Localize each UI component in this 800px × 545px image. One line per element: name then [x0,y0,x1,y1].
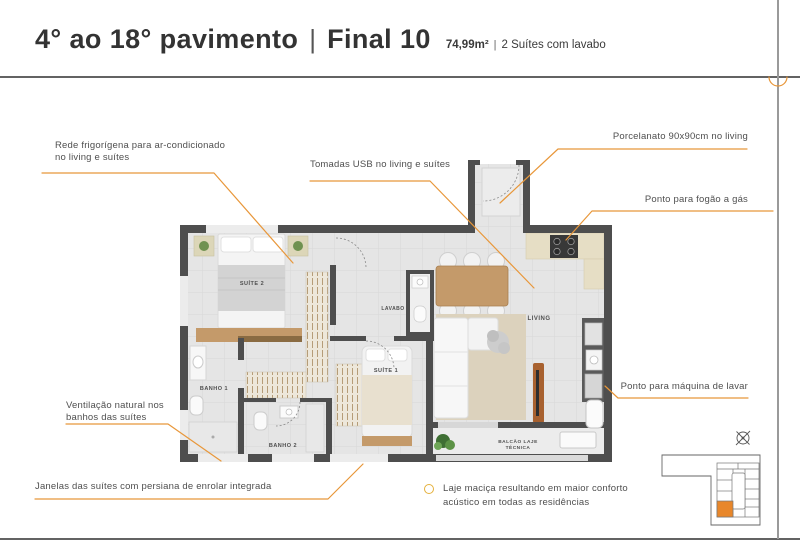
title-range: 4° ao 18° pavimento [35,24,298,55]
unit-description: 2 Suítes com lavabo [502,39,606,51]
dining-table [436,266,508,306]
annotation-ventilacao: Ventilação natural nos banhos das suítes [66,400,164,424]
kitchen-sink [590,356,598,364]
laundry-tub [586,400,603,428]
annotation-maquina-lavar: Ponto para máquina de lavar [621,381,748,393]
compass-icon [736,431,750,445]
footer-rule [0,538,800,540]
washer-spot [585,374,602,398]
closet-suite2 [306,272,328,382]
label-suite1: SUÍTE 1 [374,366,398,374]
title-divider: | [309,24,316,55]
label-suite2: SUÍTE 2 [240,279,264,287]
floor-plan: SUÍTE 2 BANHO 1 BANHO 2 SUÍTE 1 LAVABO L… [180,160,612,462]
annotation-janelas: Janelas das suítes com persiana de enrol… [35,481,271,493]
fridge [585,323,602,345]
unit-area: 74,99m² [446,39,489,51]
entry-cabinet [482,168,520,216]
subtitle-divider: | [494,39,497,51]
label-balcao-1: BALCÃO LAJE [498,438,538,445]
dining-set [436,253,508,320]
closet-hall [246,372,306,398]
header-rule [0,76,800,78]
highlighted-unit [717,501,733,517]
subtitle: 74,99m² | 2 Suítes com lavabo [446,39,606,51]
label-lavabo: LAVABO [381,306,404,312]
floorplan-page: 4° ao 18° pavimento | Final 10 74,99m² |… [0,0,800,545]
label-banho1: BANHO 1 [200,386,228,392]
cooktop [550,235,578,258]
key-plan [655,425,785,537]
label-living: LIVING [527,316,550,322]
annotation-porcelanato: Porcelanato 90x90cm no living [613,131,748,143]
annotation-fogao: Ponto para fogão a gás [645,194,748,206]
lavabo-room [406,270,434,336]
plant [434,442,442,450]
sofa [434,318,468,418]
title-unit: Final 10 [327,24,431,55]
annotation-laje-macica: Laje maciça resultando em maior conforto… [424,482,628,510]
building-grid [717,463,759,517]
washing-machine [560,432,596,448]
closet-suite1 [336,364,362,426]
diamond-bullet-icon [424,484,434,494]
label-banho2: BANHO 2 [269,443,297,449]
page-title: 4° ao 18° pavimento | Final 10 74,99m² |… [35,24,606,55]
